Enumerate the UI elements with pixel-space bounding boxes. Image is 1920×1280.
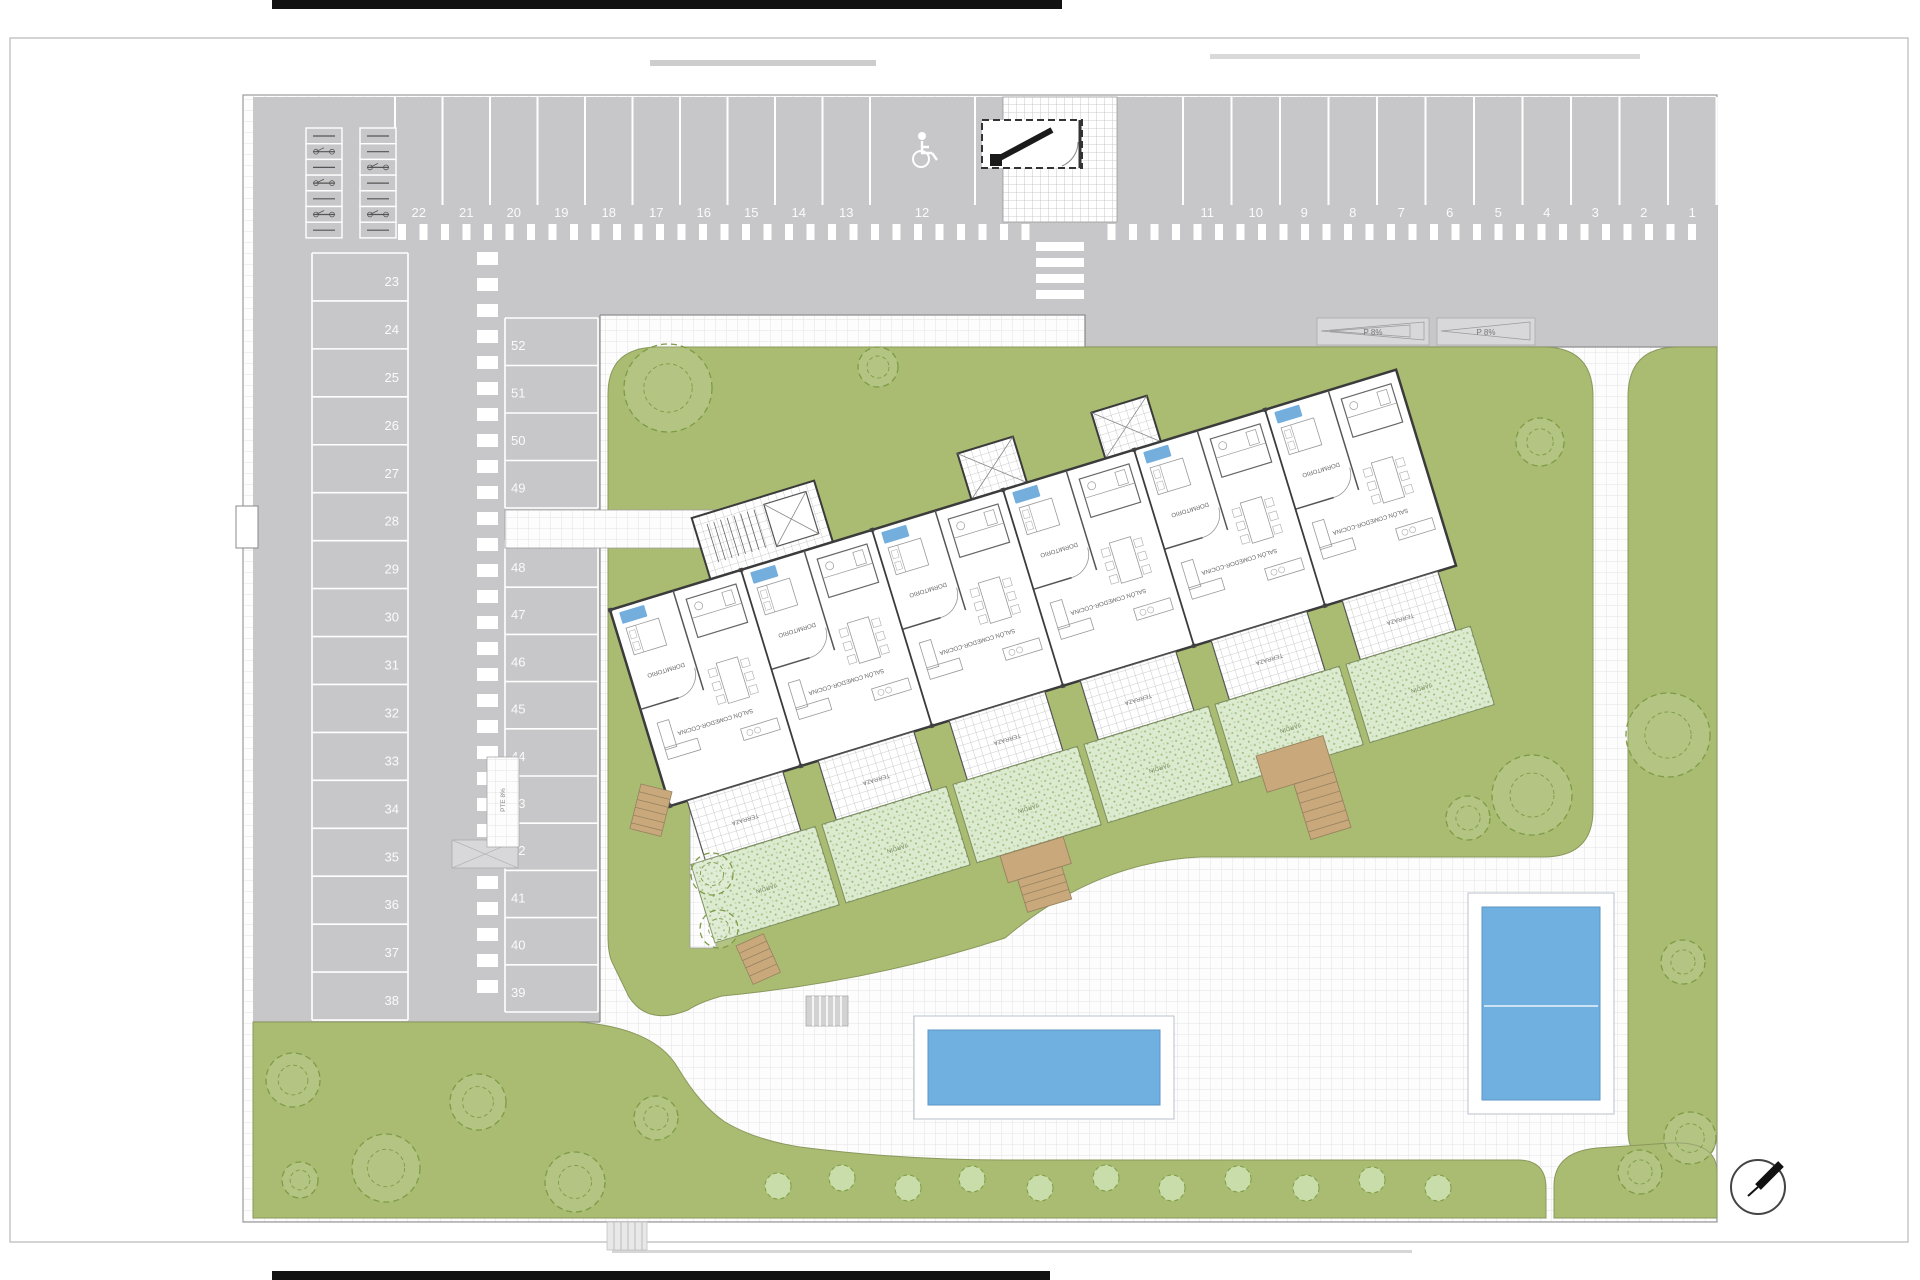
svg-text:11: 11 [1201,205,1215,220]
svg-text:19: 19 [554,205,568,220]
ramp-label: PTE 8% [500,788,507,812]
svg-text:32: 32 [385,705,399,720]
north-arrow-icon [1731,1160,1785,1214]
ramp-label: P 8% [1477,328,1496,337]
svg-text:17: 17 [649,205,663,220]
svg-text:51: 51 [511,386,525,401]
svg-text:10: 10 [1249,205,1263,220]
svg-text:28: 28 [385,514,399,529]
svg-text:39: 39 [511,985,525,1000]
svg-text:12: 12 [915,205,929,220]
svg-text:36: 36 [385,897,399,912]
stone-steps [806,996,848,1026]
svg-text:49: 49 [511,481,525,496]
svg-text:21: 21 [459,205,473,220]
svg-text:7: 7 [1398,205,1405,220]
svg-text:20: 20 [507,205,521,220]
svg-text:9: 9 [1301,205,1308,220]
svg-text:31: 31 [385,658,399,673]
svg-text:34: 34 [385,801,399,816]
svg-text:22: 22 [412,205,426,220]
svg-text:27: 27 [385,466,399,481]
svg-text:29: 29 [385,562,399,577]
svg-text:18: 18 [602,205,616,220]
svg-text:14: 14 [792,205,806,220]
svg-text:48: 48 [511,560,525,575]
svg-text:37: 37 [385,945,399,960]
pool-secondary [1468,893,1614,1114]
svg-text:47: 47 [511,607,525,622]
svg-text:25: 25 [385,370,399,385]
svg-text:3: 3 [1592,205,1599,220]
svg-text:24: 24 [385,322,399,337]
svg-text:8: 8 [1349,205,1356,220]
svg-text:15: 15 [744,205,758,220]
svg-text:1: 1 [1689,205,1696,220]
street-curb-line [1210,54,1640,59]
svg-text:6: 6 [1446,205,1453,220]
svg-text:23: 23 [385,274,399,289]
scan-bar-top [272,0,1062,9]
svg-text:4: 4 [1543,205,1550,220]
svg-text:45: 45 [511,702,525,717]
svg-text:52: 52 [511,338,525,353]
svg-text:46: 46 [511,654,525,669]
site-exit-steps [607,1222,647,1250]
svg-text:30: 30 [385,610,399,625]
svg-text:2: 2 [1640,205,1647,220]
svg-text:35: 35 [385,849,399,864]
svg-text:38: 38 [385,993,399,1008]
ramp-label: P 8% [1364,328,1383,337]
svg-text:33: 33 [385,753,399,768]
scan-bar-bottom [272,1271,1050,1280]
svg-text:13: 13 [839,205,853,220]
svg-text:26: 26 [385,418,399,433]
svg-text:16: 16 [697,205,711,220]
svg-text:50: 50 [511,433,525,448]
pool-main [914,1016,1174,1119]
site-plan-page: 2221201918171615141312111098765432123242… [0,0,1920,1280]
site-plan-drawing: 2221201918171615141312111098765432123242… [0,0,1920,1280]
svg-text:40: 40 [511,938,525,953]
street-curb-line [650,60,876,66]
svg-text:41: 41 [511,890,525,905]
street-curb-line [612,1250,1412,1253]
west-gate [236,506,258,548]
svg-text:5: 5 [1495,205,1502,220]
